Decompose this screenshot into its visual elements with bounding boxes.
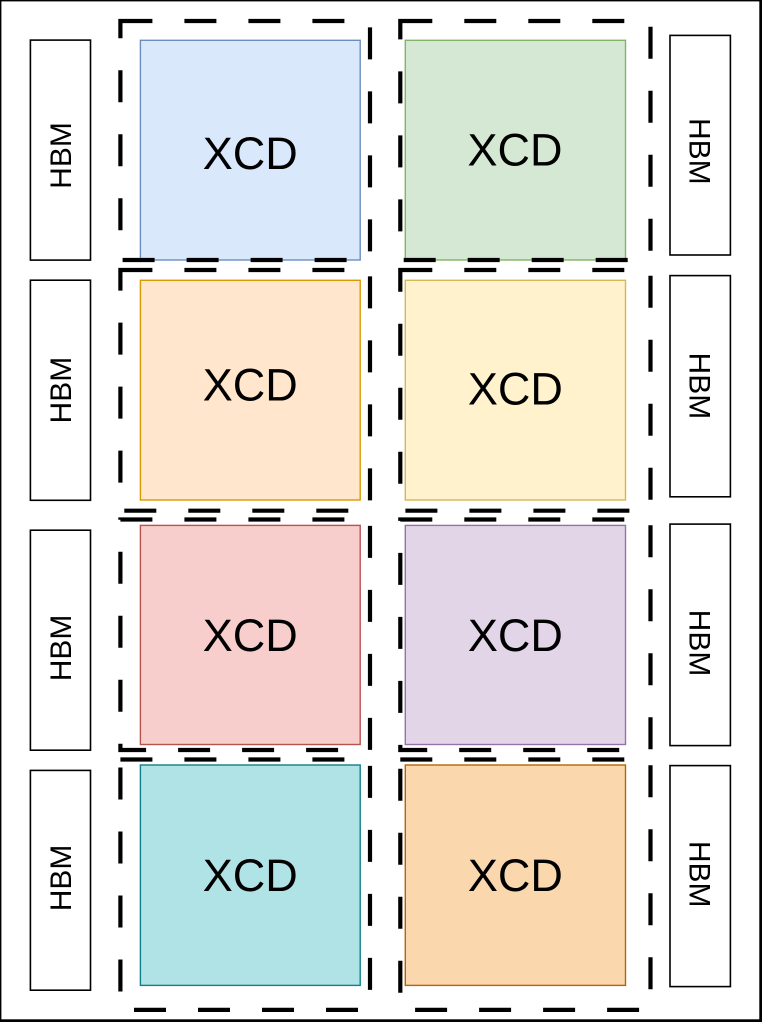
svg-text:XCD: XCD: [203, 128, 298, 179]
svg-text:XCD: XCD: [203, 359, 298, 410]
svg-text:HBM: HBM: [682, 841, 715, 908]
svg-text:XCD: XCD: [203, 850, 298, 901]
svg-text:HBM: HBM: [682, 610, 715, 677]
svg-text:XCD: XCD: [203, 610, 298, 661]
svg-text:XCD: XCD: [468, 850, 563, 901]
svg-text:HBM: HBM: [682, 118, 715, 185]
svg-text:XCD: XCD: [468, 363, 563, 414]
svg-text:XCD: XCD: [467, 125, 562, 176]
svg-text:HBM: HBM: [45, 357, 78, 424]
svg-text:HBM: HBM: [45, 845, 78, 912]
svg-text:XCD: XCD: [468, 610, 563, 661]
svg-text:HBM: HBM: [45, 615, 78, 682]
svg-text:HBM: HBM: [682, 353, 715, 420]
svg-text:HBM: HBM: [45, 122, 78, 189]
